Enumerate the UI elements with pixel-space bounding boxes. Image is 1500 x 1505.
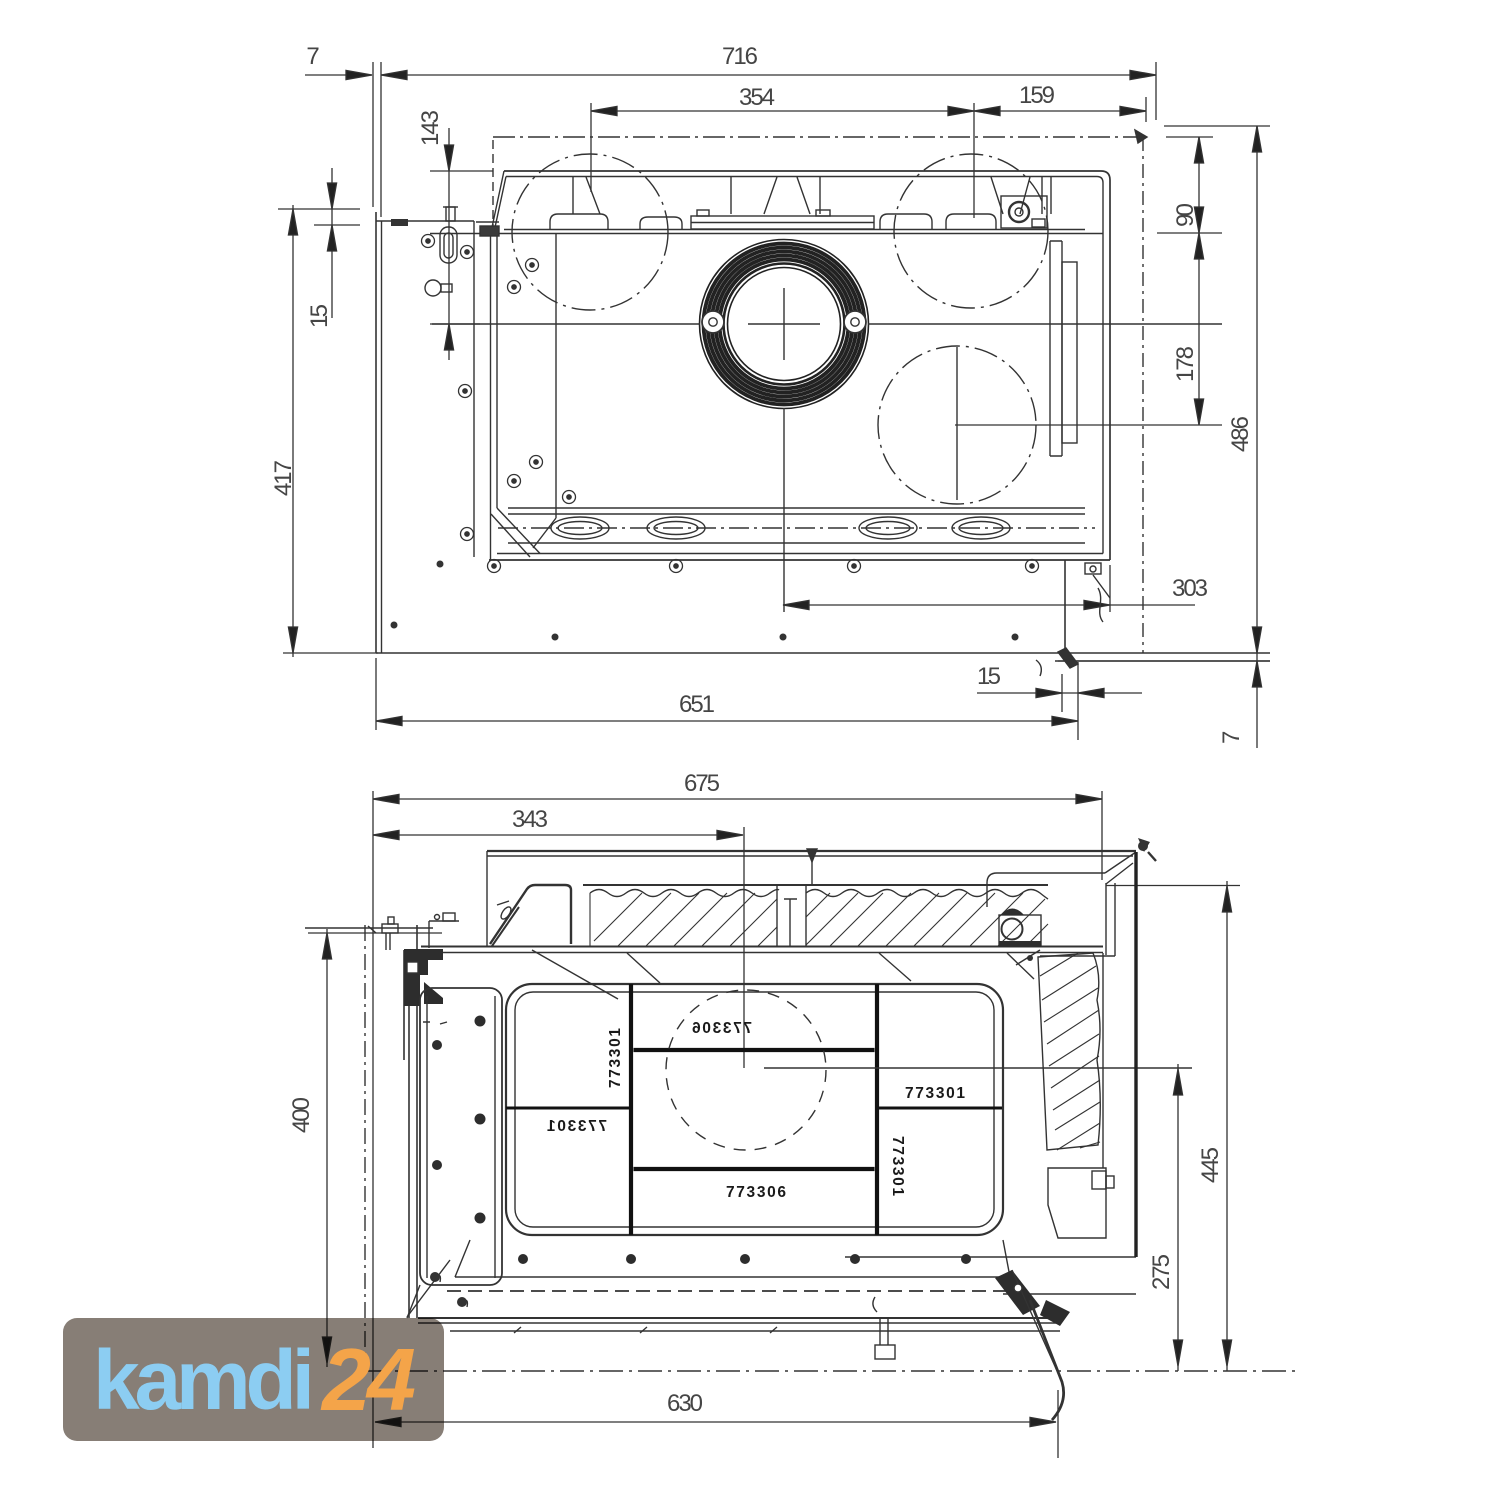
svg-text:400: 400	[288, 1097, 315, 1133]
svg-text:24: 24	[320, 1330, 416, 1429]
svg-text:15: 15	[977, 663, 1001, 690]
svg-text:159: 159	[1019, 82, 1055, 109]
svg-text:630: 630	[667, 1390, 703, 1417]
svg-text:15: 15	[306, 304, 333, 328]
svg-text:kamdi: kamdi	[93, 1333, 315, 1427]
svg-text:445: 445	[1197, 1147, 1224, 1183]
svg-text:716: 716	[722, 43, 758, 70]
svg-text:7: 7	[1218, 731, 1245, 744]
svg-text:303: 303	[1172, 575, 1208, 602]
svg-text:651: 651	[679, 691, 715, 718]
svg-text:178: 178	[1172, 346, 1199, 382]
svg-text:143: 143	[417, 110, 444, 146]
svg-text:486: 486	[1227, 416, 1254, 452]
svg-text:343: 343	[512, 806, 548, 833]
svg-text:354: 354	[739, 84, 775, 111]
svg-text:275: 275	[1148, 1254, 1175, 1290]
svg-text:7: 7	[306, 43, 319, 70]
svg-text:675: 675	[684, 770, 720, 797]
